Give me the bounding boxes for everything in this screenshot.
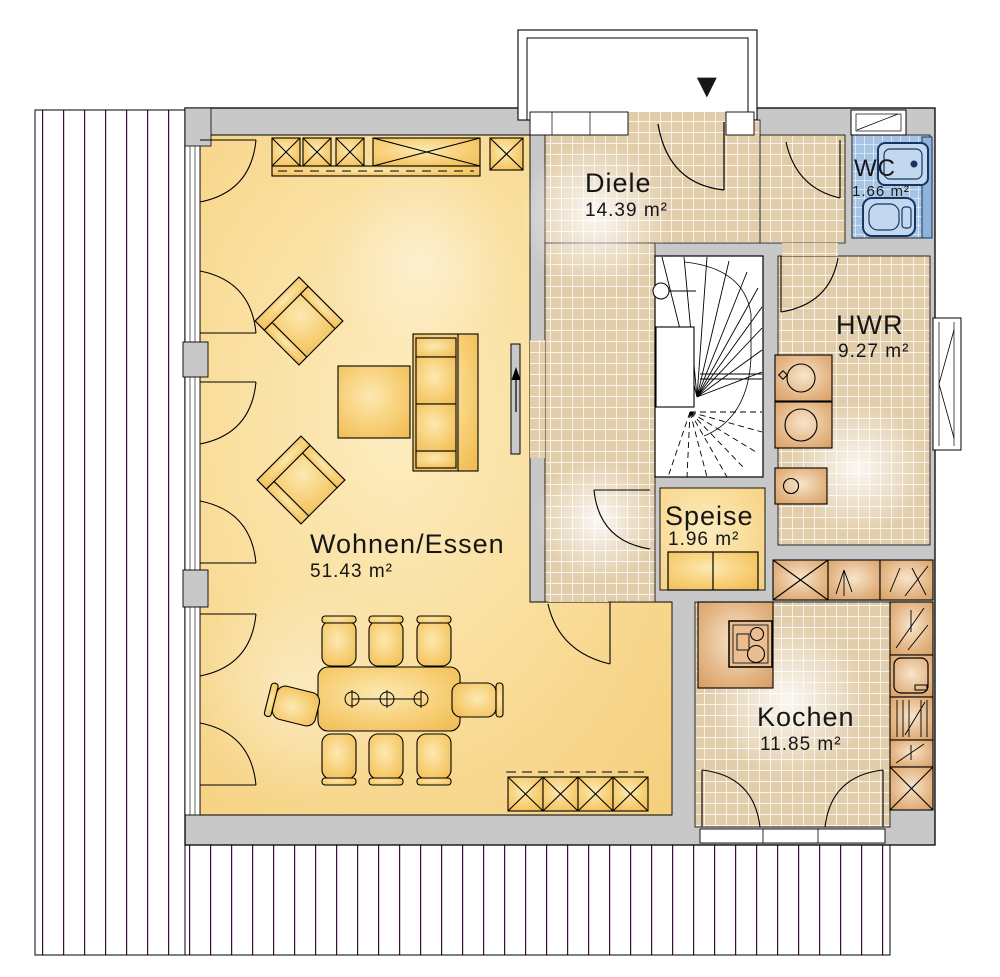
room-label-kochen: Kochen 11.85 m² [757,702,855,755]
chair [452,683,503,717]
cabinet-x [272,138,300,166]
cabinet-x [490,138,523,170]
room-label-hwr: HWR 9.27 m² [836,310,909,362]
sofa [413,334,478,471]
stove [729,621,772,667]
room-name: HWR [836,310,903,340]
coffee-table [338,366,410,438]
room-area: 14.39 m² [585,200,668,221]
room-area: 1.66 m² [852,183,910,200]
wall-pillar [183,570,208,607]
kitchen-sink [890,655,933,697]
hwr-door-opening [782,243,838,256]
utility-sink [775,468,827,504]
speise-shelf [668,552,758,590]
floor-plan-canvas: ▼ [0,0,1000,977]
cabinet-x [336,138,364,166]
floor-plan-svg: ▼ [0,0,1000,977]
terrace-left [35,110,185,955]
diele-wohnen-opening [548,588,608,602]
stair-newel-post [653,283,669,299]
room-name: WC [854,155,896,182]
wc-window [851,110,906,135]
chair [417,734,451,785]
room-area: 9.27 m² [838,341,909,362]
counter-segment [890,740,933,767]
room-name: Diele [585,168,652,198]
chair [322,734,356,785]
terrace-bottom [185,845,890,955]
hwr-window [933,318,961,450]
fridge-cabinet-x [890,767,933,810]
dryer [775,402,832,448]
counter-segment [890,602,933,655]
hwr-appliances [775,355,832,504]
dishwasher [890,697,933,740]
entrance-door-opening [628,112,726,135]
staircase [653,256,763,477]
counter-cabinet-x [773,560,828,600]
room-name: Speise [665,501,754,531]
chair [369,616,403,666]
sliding-door-opening [530,340,545,458]
counter-segment [880,560,933,600]
entrance-marker: ▼ [690,67,725,105]
room-diele-floor-topright [760,135,845,243]
sliding-door [511,344,521,454]
room-area: 51.43 m² [310,561,393,582]
counter-segment [828,560,880,600]
kitchen-terrace-sill [700,829,885,843]
room-name: Wohnen/Essen [310,529,505,559]
sideboard [506,772,650,811]
wc-toilet [863,198,915,236]
cabinet-x [303,138,331,166]
stair-well [656,327,694,407]
chair [369,734,403,785]
wall-pillar [183,342,208,377]
chair [322,616,356,666]
room-name: Kochen [757,702,855,732]
chair [417,616,451,666]
room-area: 11.85 m² [760,734,842,755]
room-area: 1.96 m² [668,529,739,550]
washing-machine [775,355,832,401]
entrance-porch: ▼ [518,30,757,120]
cabinet-x-long [373,138,480,166]
